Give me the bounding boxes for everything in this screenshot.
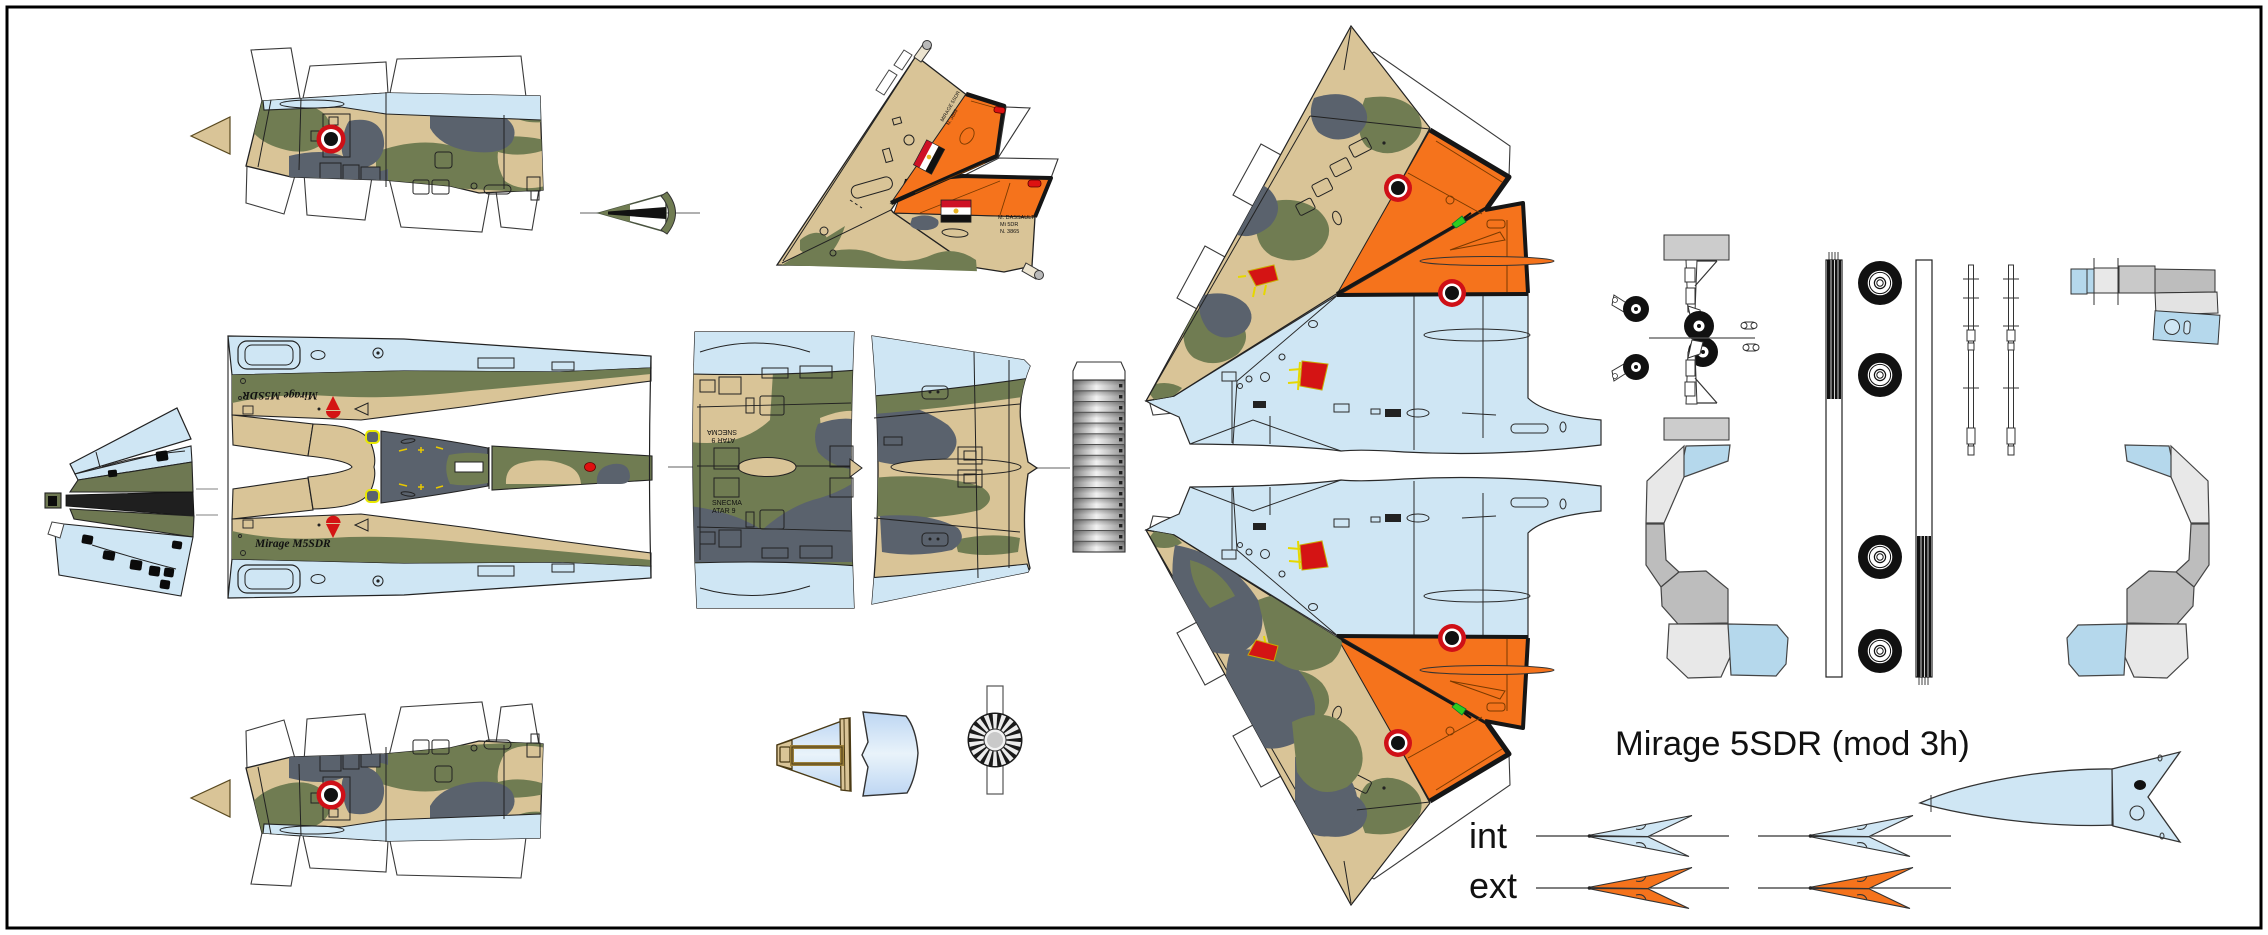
svg-text:Mi 5DR: Mi 5DR	[1000, 222, 1018, 228]
svg-text:int: int	[1469, 815, 1507, 856]
svg-text:SNECMA: SNECMA	[707, 428, 737, 435]
svg-text:Mirage M5SDR: Mirage M5SDR	[254, 538, 331, 550]
svg-text:ext: ext	[1469, 865, 1517, 906]
svg-text:Mirage M5SDR: Mirage M5SDR	[242, 389, 319, 401]
svg-text:M. DASSAULT: M. DASSAULT	[998, 215, 1035, 221]
svg-text:ATAR 9: ATAR 9	[711, 436, 735, 443]
svg-text:SNECMA: SNECMA	[712, 500, 742, 507]
svg-text:N. 3865: N. 3865	[1000, 229, 1019, 235]
svg-text:Mirage 5SDR (mod 3h): Mirage 5SDR (mod 3h)	[1615, 725, 1970, 763]
svg-text:ATAR 9: ATAR 9	[712, 508, 736, 515]
